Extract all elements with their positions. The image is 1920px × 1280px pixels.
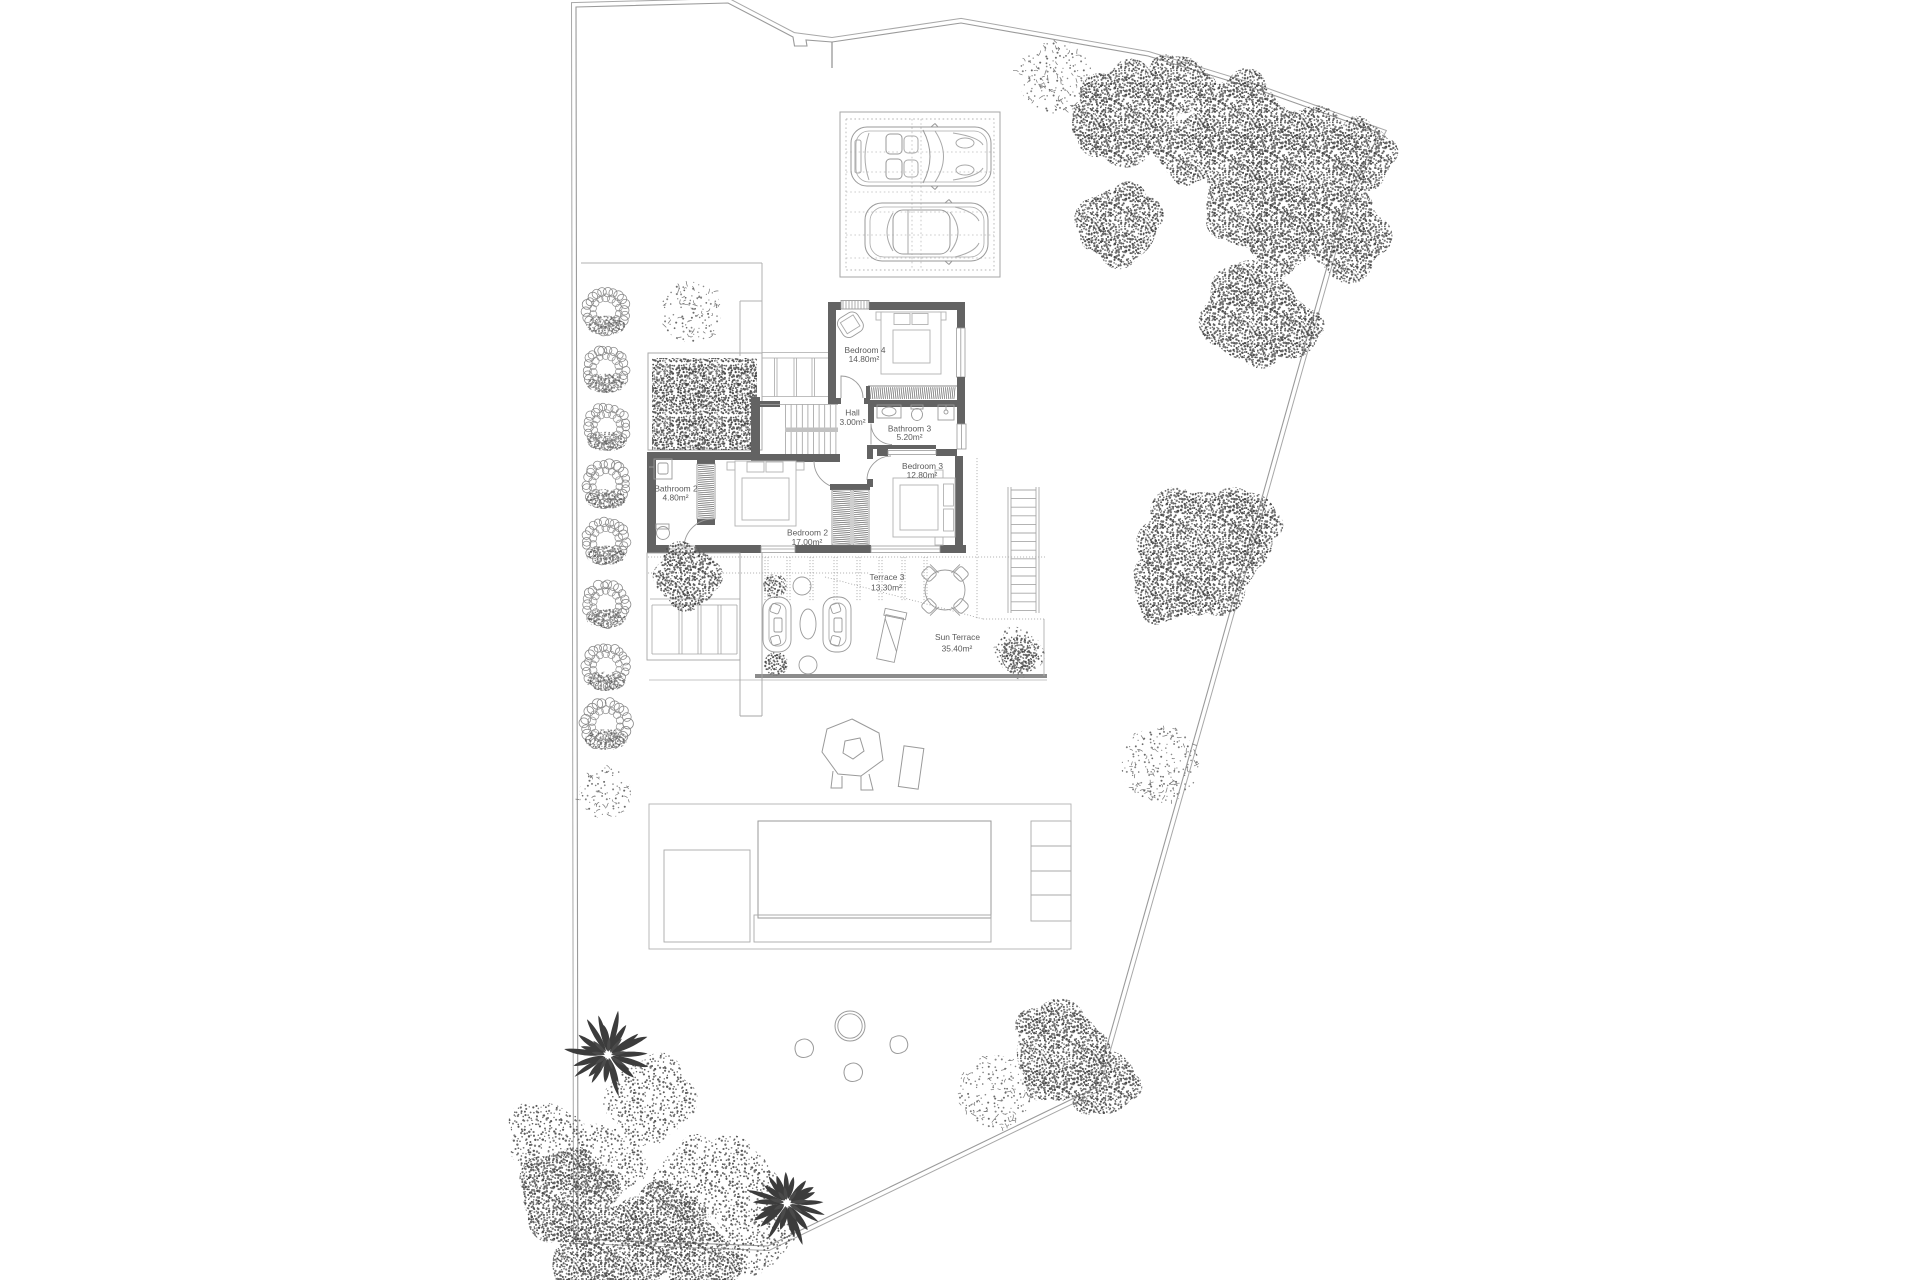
svg-text:4.80m²: 4.80m² <box>662 493 688 503</box>
svg-text:13.30m²: 13.30m² <box>871 583 902 593</box>
svg-text:5.20m²: 5.20m² <box>896 432 922 442</box>
svg-text:Sun Terrace: Sun Terrace <box>935 632 980 642</box>
svg-text:35.40m²: 35.40m² <box>942 644 973 654</box>
svg-text:12.80m²: 12.80m² <box>907 470 938 480</box>
svg-text:3.00m²: 3.00m² <box>839 417 865 427</box>
svg-text:Bedroom 2: Bedroom 2 <box>787 528 828 538</box>
svg-text:Terrace 3: Terrace 3 <box>870 572 905 582</box>
svg-text:Hall: Hall <box>845 408 860 418</box>
svg-text:14.80m²: 14.80m² <box>849 354 880 364</box>
svg-text:17.00m²: 17.00m² <box>792 537 823 547</box>
